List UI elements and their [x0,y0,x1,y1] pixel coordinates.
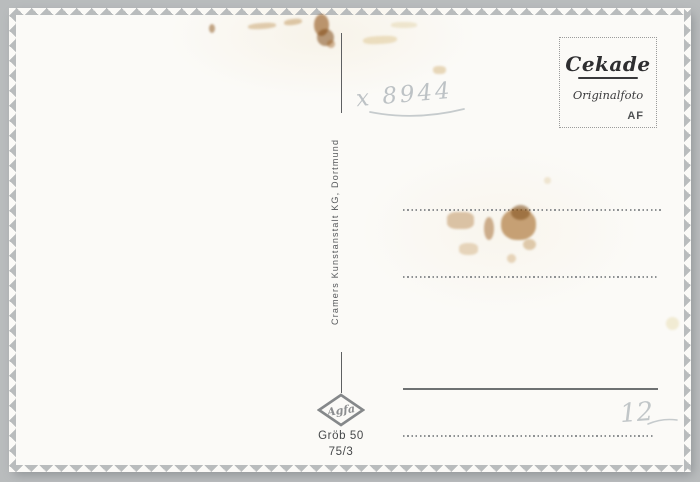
postcard-scan: Cramers Kunstanstalt KG, Dortmund Agfa G… [0,0,700,482]
handwriting-underline-swoosh [366,103,470,121]
handwritten-price-dash [646,414,680,428]
stain [209,24,215,33]
stain [523,239,536,250]
stain [447,212,474,229]
stain [544,177,551,184]
stamp-brand: Cekade [560,52,656,76]
agfa-diamond-logo: Agfa [317,393,365,427]
stain [666,317,679,330]
stamp-brand-underline [578,77,638,79]
stamp-code: AF [627,110,644,122]
stamp-box: Cekade Originalfoto AF [559,37,657,128]
divider-line-top [341,33,342,113]
stain [511,205,530,220]
deckle-edge-bottom [9,465,691,472]
address-line-4 [403,435,655,437]
publisher-imprint: Cramers Kunstanstalt KG, Dortmund [330,111,345,353]
deckle-edge-right [684,8,691,472]
divider-line-bottom [341,352,342,393]
stain [433,66,446,74]
stain [327,40,335,48]
deckle-edge-left [9,8,16,472]
deckle-edge-top [9,8,691,15]
stain [484,217,494,240]
caption-number: 75/3 [291,446,391,458]
address-line-1 [403,209,661,211]
stain [507,254,516,263]
stain [391,22,417,28]
caption-title: Gröb 50 [291,430,391,442]
stain [459,243,478,255]
address-line-2 [403,276,659,278]
stamp-subtitle: Originalfoto [560,88,656,102]
address-line-3-solid [403,388,658,390]
